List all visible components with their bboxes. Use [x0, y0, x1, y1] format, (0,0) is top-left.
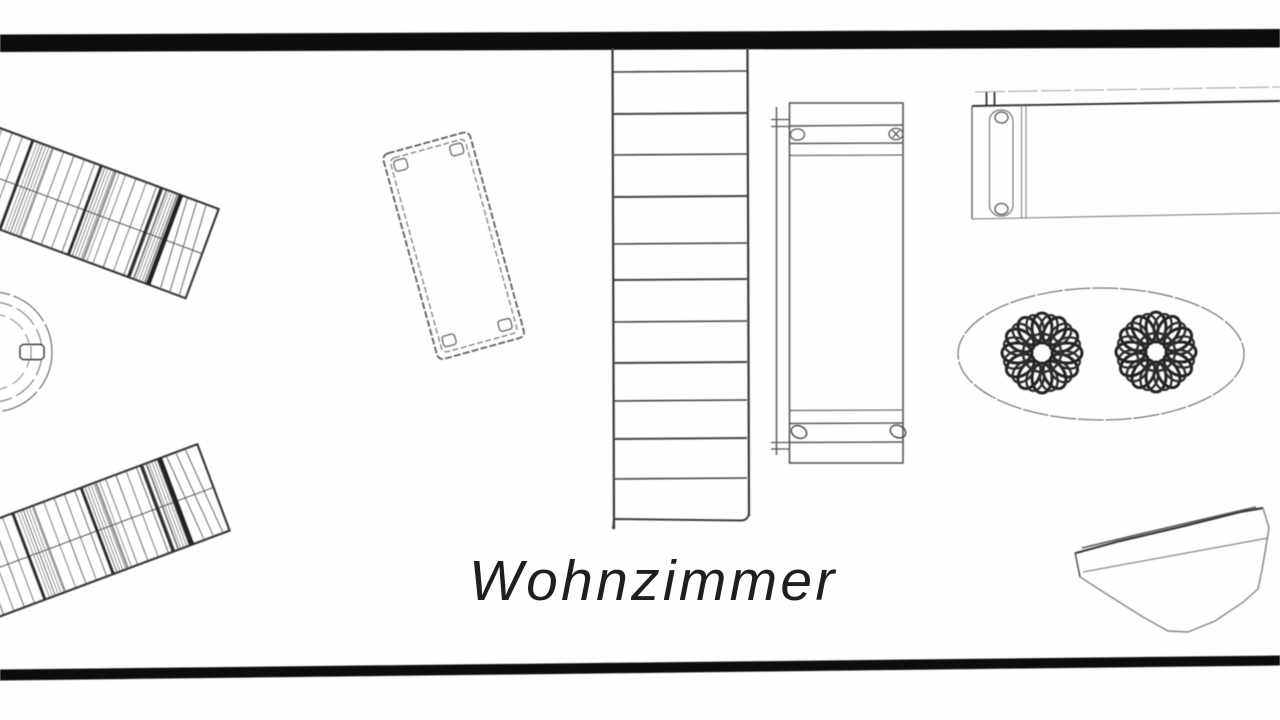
svg-text:Wohnzimmer: Wohnzimmer [469, 549, 838, 613]
